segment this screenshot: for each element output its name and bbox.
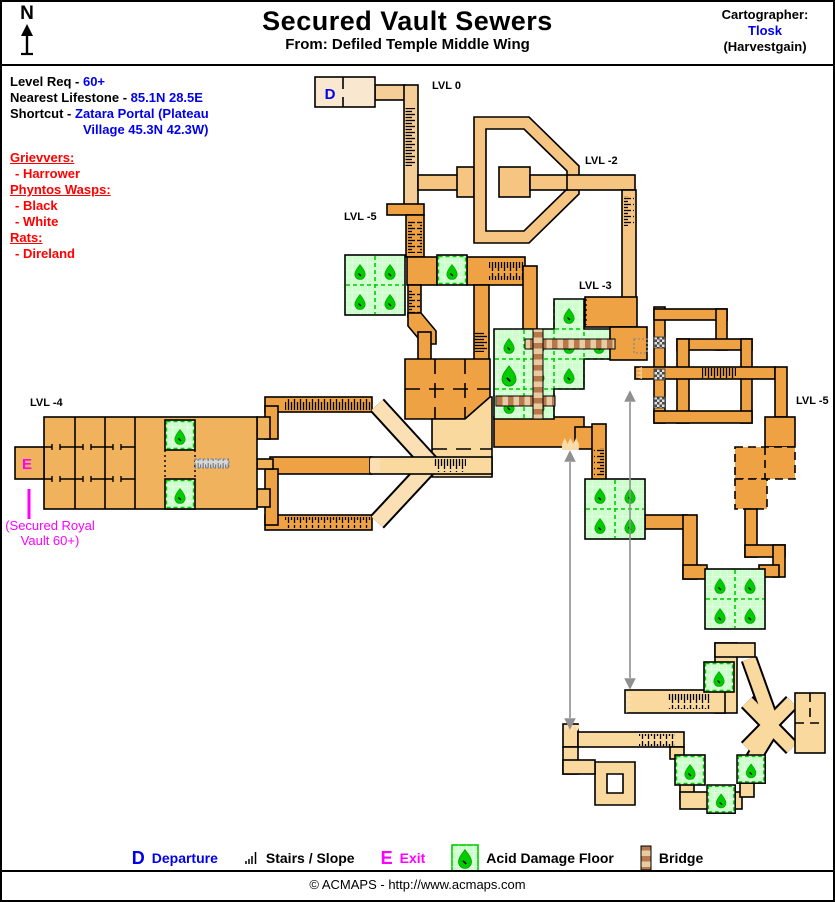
acid-label: Acid Damage Floor [486, 850, 614, 866]
stairs-icon [244, 850, 259, 866]
exit-symbol: E [381, 848, 393, 869]
exit-note: Vault 60+) [21, 533, 80, 548]
copyright-text: © ACMAPS - http://www.acmaps.com [309, 877, 525, 892]
page-title: Secured Vault Sewers [122, 6, 693, 36]
map-page: N Secured Vault Sewers From: Defiled Tem… [0, 0, 835, 902]
acid-floor-icon [451, 844, 479, 872]
info-panel: Level Req - 60+ Nearest Lifestone - 85.1… [10, 74, 209, 262]
cartographer-label: Cartographer: [701, 7, 829, 23]
compass-north-label: N [14, 4, 40, 24]
legend-acid: Acid Damage Floor [451, 844, 614, 872]
level-label: LVL -5 [344, 211, 377, 223]
creature-list: Grievvers: - Harrower Phyntos Wasps: - B… [10, 150, 209, 262]
exit-note: (Secured Royal [5, 518, 95, 533]
acid-room [707, 785, 735, 813]
legend-bridge: Bridge [640, 845, 703, 871]
level-label: LVL -2 [585, 155, 618, 167]
acid-room [675, 755, 705, 785]
acid-room [437, 255, 467, 285]
legend-stairs: Stairs / Slope [244, 850, 355, 866]
legend-exit: E Exit [381, 848, 426, 869]
bridge-icon [640, 845, 652, 871]
creature-group: Grievvers: [10, 150, 209, 166]
creature-member: - Harrower [10, 166, 209, 182]
acid-room [737, 755, 765, 783]
page-subtitle: From: Defiled Temple Middle Wing [122, 36, 693, 54]
acid-room [585, 479, 645, 539]
creature-member: - White [10, 214, 209, 230]
bridge-label: Bridge [659, 850, 703, 866]
header: N Secured Vault Sewers From: Defiled Tem… [2, 2, 833, 66]
level-label: LVL -4 [30, 397, 63, 409]
legend-departure: D Departure [132, 848, 218, 869]
acid-room [705, 569, 765, 629]
cartographer-block: Cartographer: Tlosk (Harvestgain) [701, 7, 829, 55]
exit-label: Exit [400, 850, 426, 866]
cartographer-server: (Harvestgain) [701, 39, 829, 55]
creature-group: Rats: [10, 230, 209, 246]
cartographer-name: Tlosk [701, 23, 829, 39]
lifestone-row: Nearest Lifestone - 85.1N 28.5E [10, 90, 209, 106]
shortcut-row: Shortcut - Zatara Portal (Plateau [10, 106, 209, 122]
compass: N [14, 4, 40, 63]
departure-marker: D [325, 86, 336, 103]
acid-room [704, 662, 734, 692]
creature-member: - Black [10, 198, 209, 214]
creature-member: - Direland [10, 246, 209, 262]
exit-marker: E [22, 456, 32, 473]
stairs-label: Stairs / Slope [266, 850, 355, 866]
departure-symbol: D [132, 848, 145, 869]
level-label: LVL -3 [579, 280, 612, 292]
acid-room [165, 420, 195, 450]
level-req-row: Level Req - 60+ [10, 74, 209, 90]
legend: D Departure Stairs / Slope E Exit [2, 843, 833, 873]
level-label: LVL 0 [432, 80, 461, 92]
map-region-lvl5-rings [635, 307, 795, 447]
shortcut-row2: Village 45.3N 42.3W) [83, 122, 209, 138]
map-region-lvl3-acid [494, 297, 647, 419]
acid-room [345, 255, 405, 315]
compass-arrow-icon [14, 24, 40, 58]
creature-group: Phyntos Wasps: [10, 182, 209, 198]
departure-label: Departure [152, 850, 218, 866]
footer: © ACMAPS - http://www.acmaps.com [2, 870, 833, 900]
acid-room [165, 479, 195, 509]
level-label: LVL -5 [796, 395, 829, 407]
